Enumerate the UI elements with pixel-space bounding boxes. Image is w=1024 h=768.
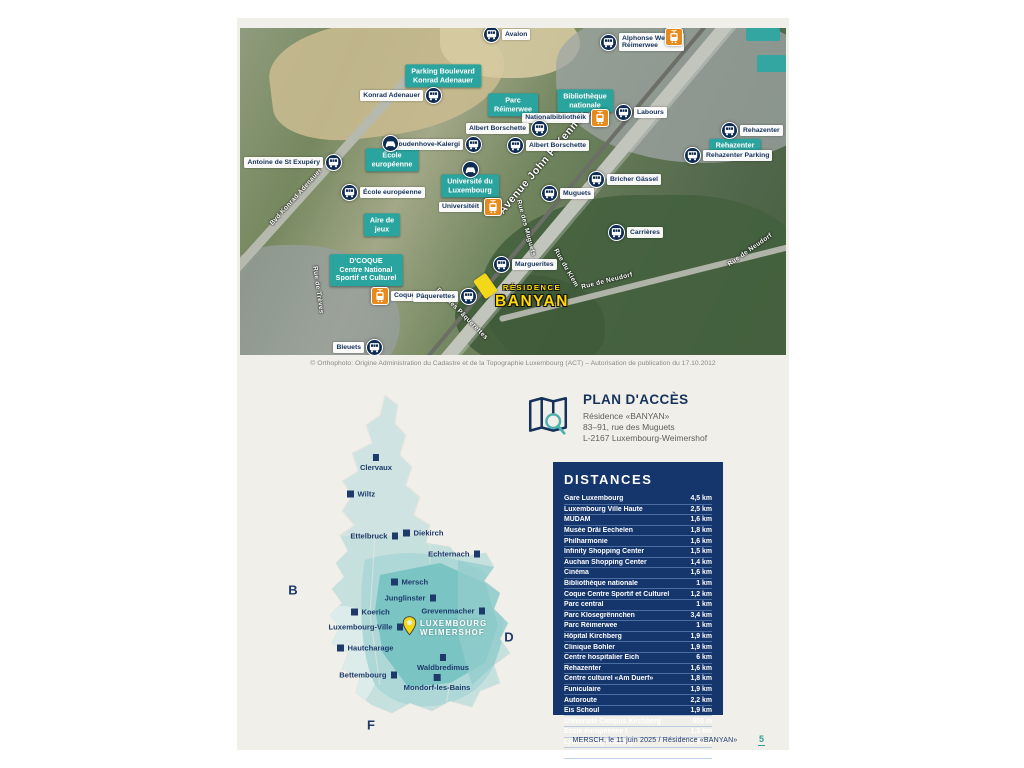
distance-row: Auchan Shopping Center1,4 km	[564, 558, 712, 569]
stop-label: Bricher Gässel	[607, 174, 661, 185]
car-icon	[462, 161, 479, 178]
distance-value: 1,2 km	[691, 591, 712, 598]
distances-table: Gare Luxembourg4,5 kmLuxembourg Ville Ha…	[564, 494, 712, 768]
stop-label-line: École européenne	[363, 189, 422, 197]
distance-row: Parc Réimerwee1 km	[564, 621, 712, 632]
residence-banyan-label: RÉSIDENCE BANYAN	[495, 283, 569, 311]
address-line: L-2167 Luxembourg-Weimershof	[583, 433, 707, 444]
country-label-d: D	[504, 630, 513, 645]
distance-row: Parc central1 km	[564, 600, 712, 611]
city-echternach: Echternach	[424, 550, 480, 559]
bus-stop: Avalon	[483, 28, 532, 43]
distance-row: MUDAM1,6 km	[564, 515, 712, 526]
luxembourg-country-map: LUXEMBOURG WEIMERSHOF ClervauxWiltzEttel…	[280, 385, 540, 745]
map-teal-patch	[746, 28, 780, 41]
distance-row: Centre culturel «Am Duerf»1,8 km	[564, 674, 712, 685]
city-label: Ettelbruck	[350, 532, 387, 541]
distance-name: Autoroute	[564, 697, 597, 704]
distance-name: Clausen	[564, 760, 591, 767]
stop-label: Albert Borschette	[526, 140, 589, 151]
distance-name: Coque Centre Sportif et Culturel	[564, 591, 669, 598]
distance-row: Eis Schoul1,9 km	[564, 706, 712, 717]
bus-stop: Pâquerettes	[411, 288, 477, 305]
distance-row: Clinique Bohler1,9 km	[564, 642, 712, 653]
distance-value-group: 1,6 km	[691, 538, 712, 545]
distance-row: Hôpital Kirchberg1,9 km	[564, 632, 712, 643]
map-copyright: © Orthophoto: Origine Administration du …	[240, 360, 786, 367]
stop-label-line: Carrières	[630, 229, 660, 237]
city-koerich: Koerich	[351, 608, 394, 617]
city-marker	[440, 654, 447, 661]
stop-label: Marguerites	[512, 259, 557, 270]
distance-row: Infinity Shopping Center1,5 km	[564, 547, 712, 558]
tram-icon	[591, 109, 609, 127]
distance-value-group: 2,1 km	[691, 750, 712, 757]
distance-value-group: 1,9 km	[691, 686, 712, 693]
city-label: Echternach	[428, 550, 469, 559]
brochure-page: RÉSIDENCE BANYAN AvalonAlphonse WeickerR…	[0, 0, 1024, 768]
plan-access-title: PLAN D'ACCÈS	[583, 392, 707, 407]
distance-value-group: 1,2 km	[691, 591, 712, 598]
bus-stop: Bleuets	[331, 339, 383, 355]
stop-label: Antoine de St Exupéry	[244, 157, 323, 168]
city-clervaux: Clervaux	[360, 454, 392, 472]
stop-label: Universitéit	[439, 202, 482, 213]
distance-name: Luxexpo The Box	[564, 750, 621, 757]
distance-value-group: 2,2 km	[691, 697, 712, 704]
distance-value-group: 2,5 km	[691, 506, 712, 513]
distance-value-group: 1 km	[696, 580, 712, 587]
poi-box-line: jeux	[370, 225, 394, 234]
distance-name: Parc central	[564, 601, 603, 608]
distance-value-group: 1,5 km	[691, 548, 712, 555]
distance-name: Parc Klosegrënnchen	[564, 612, 635, 619]
stop-label: Pâquerettes	[413, 291, 458, 302]
tram-icon	[665, 28, 683, 46]
stop-label-line: Albert Borschette	[469, 125, 526, 133]
bus-icon	[493, 256, 510, 273]
stop-label: Carrières	[627, 227, 663, 238]
city-bettembourg: Bettembourg	[335, 671, 397, 680]
distance-name: Eis Schoul	[564, 707, 599, 714]
distance-row: Rehazenter1,6 km	[564, 664, 712, 675]
city-hautcharage: Hautcharage	[337, 644, 398, 653]
bus-stop: Konrad Adenauer	[358, 87, 442, 104]
stop-label-line: Bleuets	[336, 344, 361, 352]
distance-name: Centre culturel «Am Duerf»	[564, 675, 653, 682]
distance-value: 2,2 km	[691, 697, 712, 704]
distance-value: 1 km	[696, 601, 712, 608]
city-mondorf-les-bains: Mondorf-les-Bains	[404, 674, 471, 692]
city-label: Bettembourg	[339, 671, 386, 680]
distance-value: 1,6 km	[691, 538, 712, 545]
distance-value: 1,4 km	[691, 559, 712, 566]
distance-row: Bibliothèque nationale1 km	[564, 579, 712, 590]
bus-stop: Antoine de St Exupéry	[242, 154, 342, 171]
bus-stop: Bricher Gässel	[588, 171, 663, 188]
stop-label: Rehazenter Parking	[703, 150, 772, 161]
city-waldbredimus: Waldbredimus	[417, 654, 469, 672]
distance-row: Gare Luxembourg4,5 km	[564, 494, 712, 505]
stop-label-line: Albert Borschette	[529, 142, 586, 150]
distance-row: Luxexpo The Box2,1 km	[564, 748, 712, 759]
bus-icon	[721, 122, 738, 139]
poi-box-line: Luxembourg	[447, 186, 493, 195]
city-label: Wiltz	[358, 490, 376, 499]
distance-value: 1,5 km	[691, 548, 712, 555]
bus-icon	[507, 137, 524, 154]
stop-label: École européenne	[360, 187, 425, 198]
highlight-line2: WEIMERSHOF	[420, 628, 487, 637]
poi-box: Aire dejeux	[364, 213, 400, 236]
page-number: 5	[758, 734, 765, 746]
distance-value-group: 800 m	[692, 718, 712, 725]
distance-row: Luxembourg Ville Haute2,5 km	[564, 505, 712, 516]
stop-label-line: Pâquerettes	[416, 293, 455, 301]
bus-stop: Rehazenter Parking	[684, 147, 774, 164]
distance-row: Autoroute2,2 km	[564, 695, 712, 706]
bus-stop: Albert Borschette	[464, 120, 548, 137]
distance-value-group: 1 km	[696, 601, 712, 608]
poi-box: D'COQUECentre NationalSportif et Culture…	[330, 254, 403, 286]
distance-value-group: 1,8 km	[691, 675, 712, 682]
tram-icon	[484, 198, 502, 216]
city-marker	[430, 595, 437, 602]
distance-name: Hôpital Kirchberg	[564, 633, 622, 640]
distance-value-group: 3,4 km	[691, 612, 712, 619]
distance-value: 4,5 km	[691, 495, 712, 502]
distance-name: Luxembourg Ville Haute	[564, 506, 643, 513]
poi-box-line: européenne	[372, 160, 413, 169]
distance-row: Cinéma1,6 km	[564, 568, 712, 579]
city-label: Mondorf-les-Bains	[404, 683, 471, 692]
city-marker	[337, 645, 344, 652]
distance-name: Clinique Bohler	[564, 644, 615, 651]
stop-label: Coudenhove-Kalergi	[391, 139, 463, 150]
poi-box-line: Konrad Adenauer	[411, 76, 475, 85]
stop-label-line: Universitéit	[442, 203, 479, 211]
stop-label-line: Antoine de St Exupéry	[247, 159, 320, 167]
stop-label: Rehazenter	[740, 125, 783, 136]
city-luxembourg-ville: Luxembourg-Ville	[325, 623, 404, 632]
distance-row: Coque Centre Sportif et Culturel1,2 km	[564, 589, 712, 600]
distance-value-group: 1,6 km	[691, 665, 712, 672]
bus-icon	[460, 288, 477, 305]
stop-label-line: Rehazenter Parking	[706, 152, 769, 160]
distance-name: Université Campus Kirchberg	[564, 718, 661, 725]
plan-access-block: PLAN D'ACCÈS Résidence «BANYAN»83–91, ru…	[525, 392, 707, 444]
stop-label-line: Marguerites	[515, 261, 554, 269]
city-marker	[434, 674, 441, 681]
distance-row: Université Campus Kirchberg800 m	[564, 716, 712, 727]
bus-icon	[600, 34, 617, 51]
city-label: Clervaux	[360, 463, 392, 472]
country-label-f: F	[367, 718, 375, 733]
bus-icon	[341, 184, 358, 201]
distance-name: Rehazenter	[564, 665, 601, 672]
distance-name: Centre hospitalier Eich	[564, 654, 639, 661]
residence-line1: RÉSIDENCE	[495, 283, 569, 292]
distance-value-group: 1,6 km	[691, 569, 712, 576]
distance-name: Infinity Shopping Center	[564, 548, 644, 555]
bus-icon	[483, 28, 500, 43]
street-label: Bvd Konrad Adenauer	[269, 167, 324, 227]
stop-label-line: Avalon	[505, 31, 527, 39]
stop-label: Avalon	[502, 29, 530, 40]
city-ettelbruck: Ettelbruck	[346, 532, 398, 541]
stop-label: Albert Borschette	[466, 123, 529, 134]
distance-row: Centre hospitalier Eich6 km	[564, 653, 712, 664]
distance-value-group: 4,5 km	[691, 495, 712, 502]
distance-name: Parc Réimerwee	[564, 622, 617, 629]
footer-text: MERSCH, le 11 juin 2025 / Résidence «BAN…	[540, 737, 770, 744]
address-line: 83–91, rue des Muguets	[583, 422, 707, 433]
bus-stop: Labours	[615, 104, 669, 121]
stop-label: Labours	[634, 107, 667, 118]
city-marker	[373, 454, 380, 461]
stop-label: Konrad Adenauer	[360, 90, 423, 101]
distances-title: DISTANCES	[564, 472, 712, 487]
poi-box: Parking BoulevardKonrad Adenauer	[405, 64, 481, 87]
distance-value: 1 km	[696, 622, 712, 629]
distance-name: Auchan Shopping Center	[564, 559, 647, 566]
distance-value: 1 km	[696, 580, 712, 587]
stop-label-line: Muguets	[563, 190, 591, 198]
bus-icon	[684, 147, 701, 164]
bus-icon	[541, 185, 558, 202]
bus-icon	[531, 120, 548, 137]
distance-value-group: 1 km	[696, 622, 712, 629]
distance-name: Philharmonie	[564, 538, 608, 545]
bus-stop: Rehazenter	[721, 122, 785, 139]
distance-value: 1,6 km	[691, 569, 712, 576]
city-label: Junglinster	[385, 594, 426, 603]
aerial-access-map: RÉSIDENCE BANYAN AvalonAlphonse WeickerR…	[240, 28, 786, 355]
distance-name: Gare Luxembourg	[564, 495, 623, 502]
distance-value: 1,6 km	[691, 665, 712, 672]
poi-box-line: Sportif et Culturel	[336, 274, 397, 283]
stop-label-line: Bricher Gässel	[610, 176, 658, 184]
stop-label-line: Konrad Adenauer	[363, 92, 420, 100]
distance-value: 800 m	[692, 718, 712, 725]
distance-value: 2,1 km	[691, 760, 712, 767]
distance-value: 2,5 km	[691, 506, 712, 513]
distance-value-group: 1,4 km	[691, 559, 712, 566]
highlight-line1: LUXEMBOURG	[420, 619, 487, 628]
city-label: Hautcharage	[348, 644, 394, 653]
city-marker	[392, 533, 399, 540]
city-label: Waldbredimus	[417, 663, 469, 672]
distance-value: 1,9 km	[691, 644, 712, 651]
distance-value-group: 1,3 km	[691, 728, 712, 735]
distance-row: Funiculaire1,9 km	[564, 685, 712, 696]
address-line: Résidence «BANYAN»	[583, 411, 707, 422]
distance-name: Cinéma	[564, 569, 589, 576]
distance-value: 6 km	[696, 654, 712, 661]
distance-value: 1,8 km	[691, 675, 712, 682]
distance-value: 1,3 km	[691, 728, 712, 735]
bus-stop: Marguerites	[493, 256, 559, 273]
city-marker	[391, 672, 398, 679]
distance-value: 1,9 km	[691, 707, 712, 714]
city-marker	[403, 530, 410, 537]
bus-icon	[465, 136, 482, 153]
city-label: Diekirch	[414, 529, 444, 538]
tram-stop: Universitéit	[437, 198, 502, 216]
distance-name: École européenne I	[564, 728, 627, 735]
bus-icon	[425, 87, 442, 104]
city-marker	[391, 579, 398, 586]
distance-row: Parc Klosegrënnchen3,4 km	[564, 611, 712, 622]
distances-panel: DISTANCES Gare Luxembourg4,5 kmLuxembour…	[553, 462, 723, 715]
stop-label-line: Labours	[637, 109, 664, 117]
car-stop	[382, 135, 399, 152]
residence-line2: BANYAN	[495, 293, 569, 311]
tram-stop	[665, 28, 683, 46]
bus-stop: Albert Borschette	[507, 137, 591, 154]
distance-value-group: 1,6 km	[691, 516, 712, 523]
plan-access-address: Résidence «BANYAN»83–91, rue des Muguets…	[583, 411, 707, 444]
distance-value-group: 1,9 km	[691, 644, 712, 651]
distance-name: Bibliothèque nationale	[564, 580, 638, 587]
car-stop	[462, 161, 479, 178]
weimershof-highlight: LUXEMBOURG WEIMERSHOF	[402, 611, 487, 637]
distance-value: 3,4 km	[691, 612, 712, 619]
distance-row: Clausen2,1 km	[564, 759, 712, 768]
stop-label-line: Rehazenter	[743, 127, 780, 135]
distance-name: Musée Dräi Eechelen	[564, 527, 633, 534]
city-label: Mersch	[402, 578, 429, 587]
city-junglinster: Junglinster	[381, 594, 436, 603]
city-marker	[474, 551, 481, 558]
city-marker	[351, 609, 358, 616]
city-diekirch: Diekirch	[403, 529, 447, 538]
bus-stop: Muguets	[541, 185, 596, 202]
distance-value-group: 6 km	[696, 654, 712, 661]
distance-value-group: 1,9 km	[691, 633, 712, 640]
distance-value: 1,8 km	[691, 527, 712, 534]
bus-icon	[366, 339, 383, 355]
distance-value-group: 1,9 km	[691, 707, 712, 714]
map-teal-patch	[757, 55, 786, 72]
bus-stop: Carrières	[608, 224, 665, 241]
city-marker	[347, 491, 354, 498]
city-label: Luxembourg-Ville	[329, 623, 393, 632]
stop-label: Bleuets	[333, 342, 364, 353]
weimershof-label: LUXEMBOURG WEIMERSHOF	[420, 619, 487, 637]
city-wiltz: Wiltz	[347, 490, 379, 499]
tram-icon	[371, 287, 389, 305]
city-label: Koerich	[362, 608, 390, 617]
distance-name: MUDAM	[564, 516, 590, 523]
bus-stop: Coudenhove-Kalergi	[389, 136, 482, 153]
location-pin-icon	[402, 615, 417, 637]
distance-row: Musée Dräi Eechelen1,8 km	[564, 526, 712, 537]
stop-label-line: Coudenhove-Kalergi	[394, 141, 460, 149]
distance-row: Philharmonie1,6 km	[564, 536, 712, 547]
distance-value-group: 1,8 km	[691, 527, 712, 534]
bus-stop: École européenne	[341, 184, 427, 201]
bus-icon	[325, 154, 342, 171]
country-label-b: B	[288, 583, 297, 598]
bus-icon	[615, 104, 632, 121]
distance-value: 1,9 km	[691, 686, 712, 693]
distance-value: 2,1 km	[691, 750, 712, 757]
city-mersch: Mersch	[391, 578, 432, 587]
bus-icon	[608, 224, 625, 241]
distance-value-group: 2,1 km	[691, 760, 712, 767]
distance-value: 1,9 km	[691, 633, 712, 640]
distance-value: 1,6 km	[691, 516, 712, 523]
stop-label: Muguets	[560, 188, 594, 199]
distance-name: Funiculaire	[564, 686, 601, 693]
car-icon	[382, 135, 399, 152]
